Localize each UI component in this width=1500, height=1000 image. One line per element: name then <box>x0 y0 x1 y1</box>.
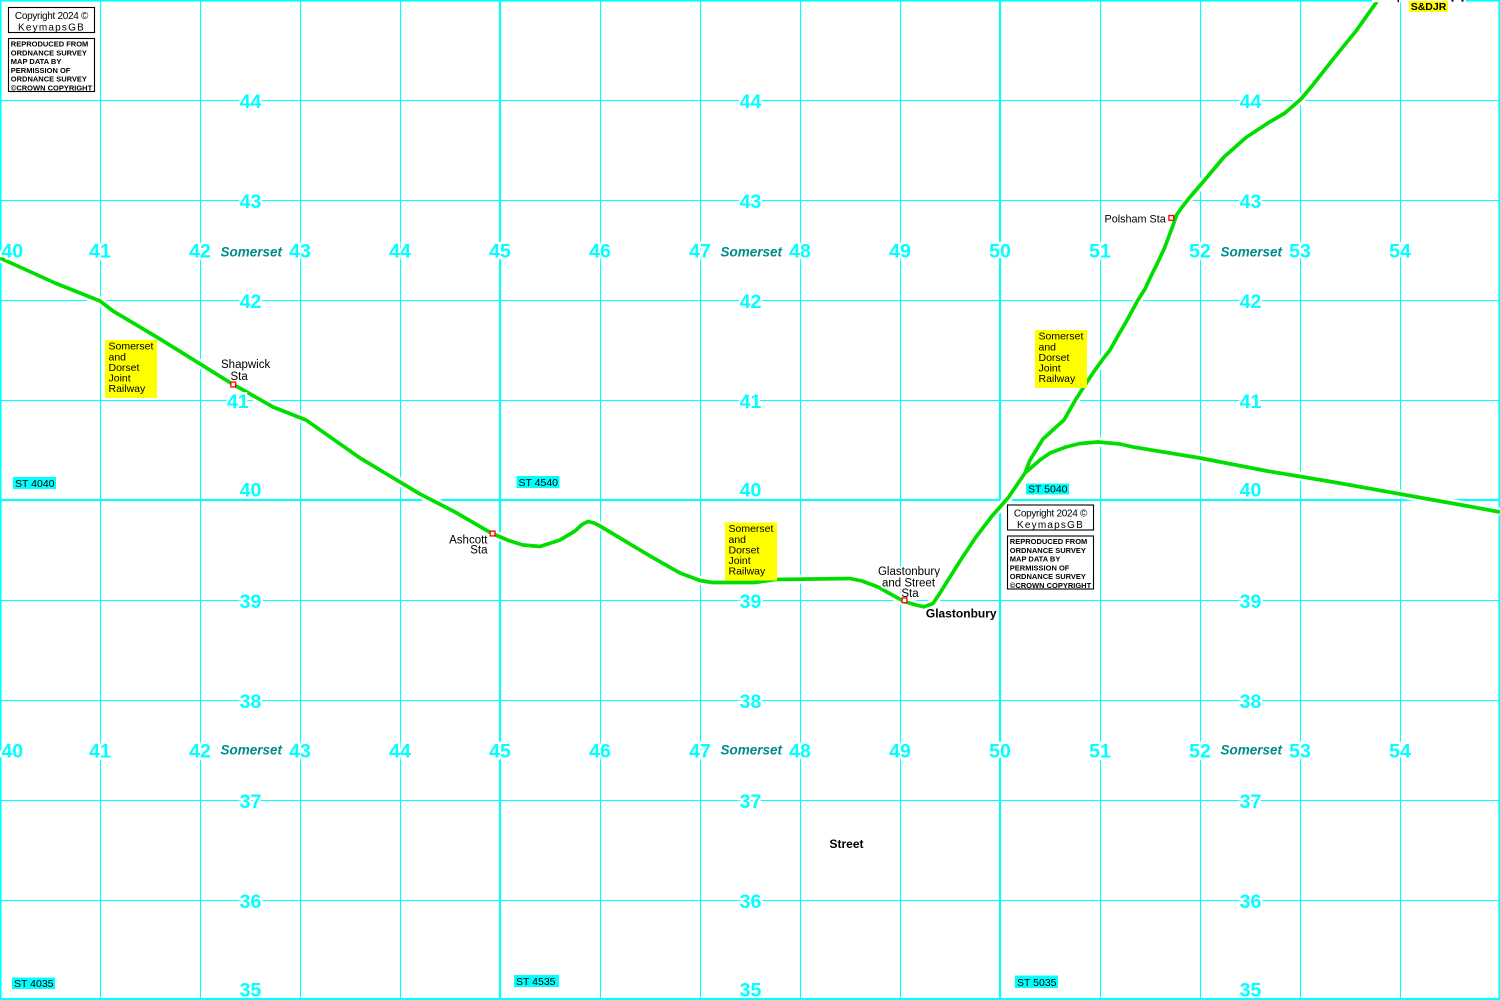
svg-text:42: 42 <box>189 741 211 763</box>
svg-text:Somerset: Somerset <box>721 742 783 757</box>
svg-text:44: 44 <box>1240 91 1262 113</box>
svg-text:43: 43 <box>740 191 762 213</box>
svg-text:40: 40 <box>1 241 23 263</box>
svg-text:ST 4040: ST 4040 <box>15 478 55 490</box>
svg-text:54: 54 <box>1389 741 1411 763</box>
svg-text:50: 50 <box>989 741 1011 763</box>
svg-text:39: 39 <box>740 591 762 613</box>
svg-text:44: 44 <box>389 241 411 263</box>
svg-text:ST 5035: ST 5035 <box>1017 977 1057 989</box>
svg-text:36: 36 <box>240 891 262 913</box>
svg-text:36: 36 <box>740 891 762 913</box>
svg-text:ST 5040: ST 5040 <box>1028 484 1068 496</box>
svg-text:41: 41 <box>89 241 111 263</box>
svg-text:43: 43 <box>289 241 311 263</box>
svg-text:35: 35 <box>1240 979 1262 1000</box>
svg-text:51: 51 <box>1089 741 1111 763</box>
svg-text:35: 35 <box>240 979 262 1000</box>
svg-text:ORDNANCE SURVEY: ORDNANCE SURVEY <box>11 75 87 84</box>
svg-text:Somerset: Somerset <box>1221 742 1283 757</box>
svg-text:38: 38 <box>740 691 762 713</box>
svg-text:37: 37 <box>1240 791 1262 813</box>
svg-text:41: 41 <box>89 741 111 763</box>
svg-text:KeymapsGB: KeymapsGB <box>1017 520 1084 531</box>
svg-text:42: 42 <box>240 291 262 313</box>
svg-text:53: 53 <box>1289 241 1311 263</box>
svg-text:Somerset: Somerset <box>721 244 783 259</box>
svg-text:44: 44 <box>740 91 762 113</box>
svg-text:37: 37 <box>740 791 762 813</box>
svg-text:53: 53 <box>1289 741 1311 763</box>
svg-text:ST 4540: ST 4540 <box>519 477 559 489</box>
svg-text:52: 52 <box>1189 241 1211 263</box>
svg-text:50: 50 <box>989 241 1011 263</box>
svg-text:47: 47 <box>689 741 711 763</box>
svg-text:39: 39 <box>240 591 262 613</box>
svg-text:Shapwick: Shapwick <box>221 359 270 371</box>
svg-text:Sta: Sta <box>470 545 488 557</box>
svg-text:MAP DATA BY: MAP DATA BY <box>1010 555 1061 564</box>
svg-text:ORDNANCE SURVEY: ORDNANCE SURVEY <box>11 48 87 57</box>
svg-text:46: 46 <box>589 241 611 263</box>
svg-text:46: 46 <box>589 741 611 763</box>
svg-text:Somerset: Somerset <box>1221 244 1283 259</box>
svg-text:40: 40 <box>1240 479 1262 501</box>
svg-text:42: 42 <box>189 241 211 263</box>
svg-text:54: 54 <box>1389 241 1411 263</box>
svg-text:MAP DATA BY: MAP DATA BY <box>11 57 62 66</box>
svg-text:Somerset: Somerset <box>221 244 283 259</box>
svg-text:Glastonbury: Glastonbury <box>926 606 997 620</box>
svg-text:48: 48 <box>789 741 811 763</box>
svg-text:ORDNANCE SURVEY: ORDNANCE SURVEY <box>1010 572 1086 581</box>
svg-text:44: 44 <box>389 741 411 763</box>
svg-text:41: 41 <box>740 391 762 413</box>
svg-text:REPRODUCED FROM: REPRODUCED FROM <box>1010 537 1088 546</box>
svg-text:51: 51 <box>1089 241 1111 263</box>
svg-text:48: 48 <box>789 241 811 263</box>
svg-text:Glastonbury: Glastonbury <box>878 566 940 578</box>
svg-text:ST 4035: ST 4035 <box>14 978 54 990</box>
svg-text:Street: Street <box>830 837 864 851</box>
svg-text:Railway: Railway <box>1039 373 1077 385</box>
svg-text:41: 41 <box>1240 391 1262 413</box>
svg-text:43: 43 <box>240 191 262 213</box>
svg-text:45: 45 <box>489 741 511 763</box>
svg-text:39: 39 <box>1240 591 1262 613</box>
svg-text:42: 42 <box>740 291 762 313</box>
svg-text:36: 36 <box>1240 891 1262 913</box>
svg-text:38: 38 <box>240 691 262 713</box>
svg-text:49: 49 <box>889 241 911 263</box>
svg-text:40: 40 <box>740 479 762 501</box>
svg-text:45: 45 <box>489 241 511 263</box>
svg-text:49: 49 <box>889 741 911 763</box>
svg-text:Polsham Sta: Polsham Sta <box>1105 213 1166 225</box>
svg-text:PERMISSION OF: PERMISSION OF <box>1010 563 1070 572</box>
svg-text:44: 44 <box>240 91 262 113</box>
svg-text:43: 43 <box>1240 191 1262 213</box>
svg-text:41: 41 <box>227 391 249 413</box>
svg-text:©CROWN COPYRIGHT: ©CROWN COPYRIGHT <box>11 84 93 93</box>
svg-text:40: 40 <box>240 479 262 501</box>
svg-text:42: 42 <box>1240 291 1262 313</box>
svg-text:©CROWN COPYRIGHT: ©CROWN COPYRIGHT <box>1010 581 1092 590</box>
svg-text:Copyright 2024 ©: Copyright 2024 © <box>1014 508 1088 519</box>
svg-text:38: 38 <box>1240 691 1262 713</box>
svg-text:Railway: Railway <box>109 383 147 395</box>
svg-text:Copyright 2024 ©: Copyright 2024 © <box>15 11 89 22</box>
svg-text:PERMISSION OF: PERMISSION OF <box>11 66 71 75</box>
svg-text:ORDNANCE SURVEY: ORDNANCE SURVEY <box>1010 546 1086 555</box>
svg-text:Somerset: Somerset <box>221 742 283 757</box>
svg-text:Railway: Railway <box>729 566 767 578</box>
svg-text:KeymapsGB: KeymapsGB <box>18 23 85 34</box>
svg-text:52: 52 <box>1189 741 1211 763</box>
svg-text:37: 37 <box>240 791 262 813</box>
svg-text:Sta: Sta <box>231 371 249 383</box>
svg-text:REPRODUCED FROM: REPRODUCED FROM <box>11 40 89 49</box>
svg-text:43: 43 <box>289 741 311 763</box>
svg-text:S&DJR: S&DJR <box>1411 1 1447 13</box>
svg-text:ST 4535: ST 4535 <box>516 976 556 988</box>
svg-text:47: 47 <box>689 241 711 263</box>
svg-text:35: 35 <box>740 979 762 1000</box>
svg-text:40: 40 <box>1 741 23 763</box>
